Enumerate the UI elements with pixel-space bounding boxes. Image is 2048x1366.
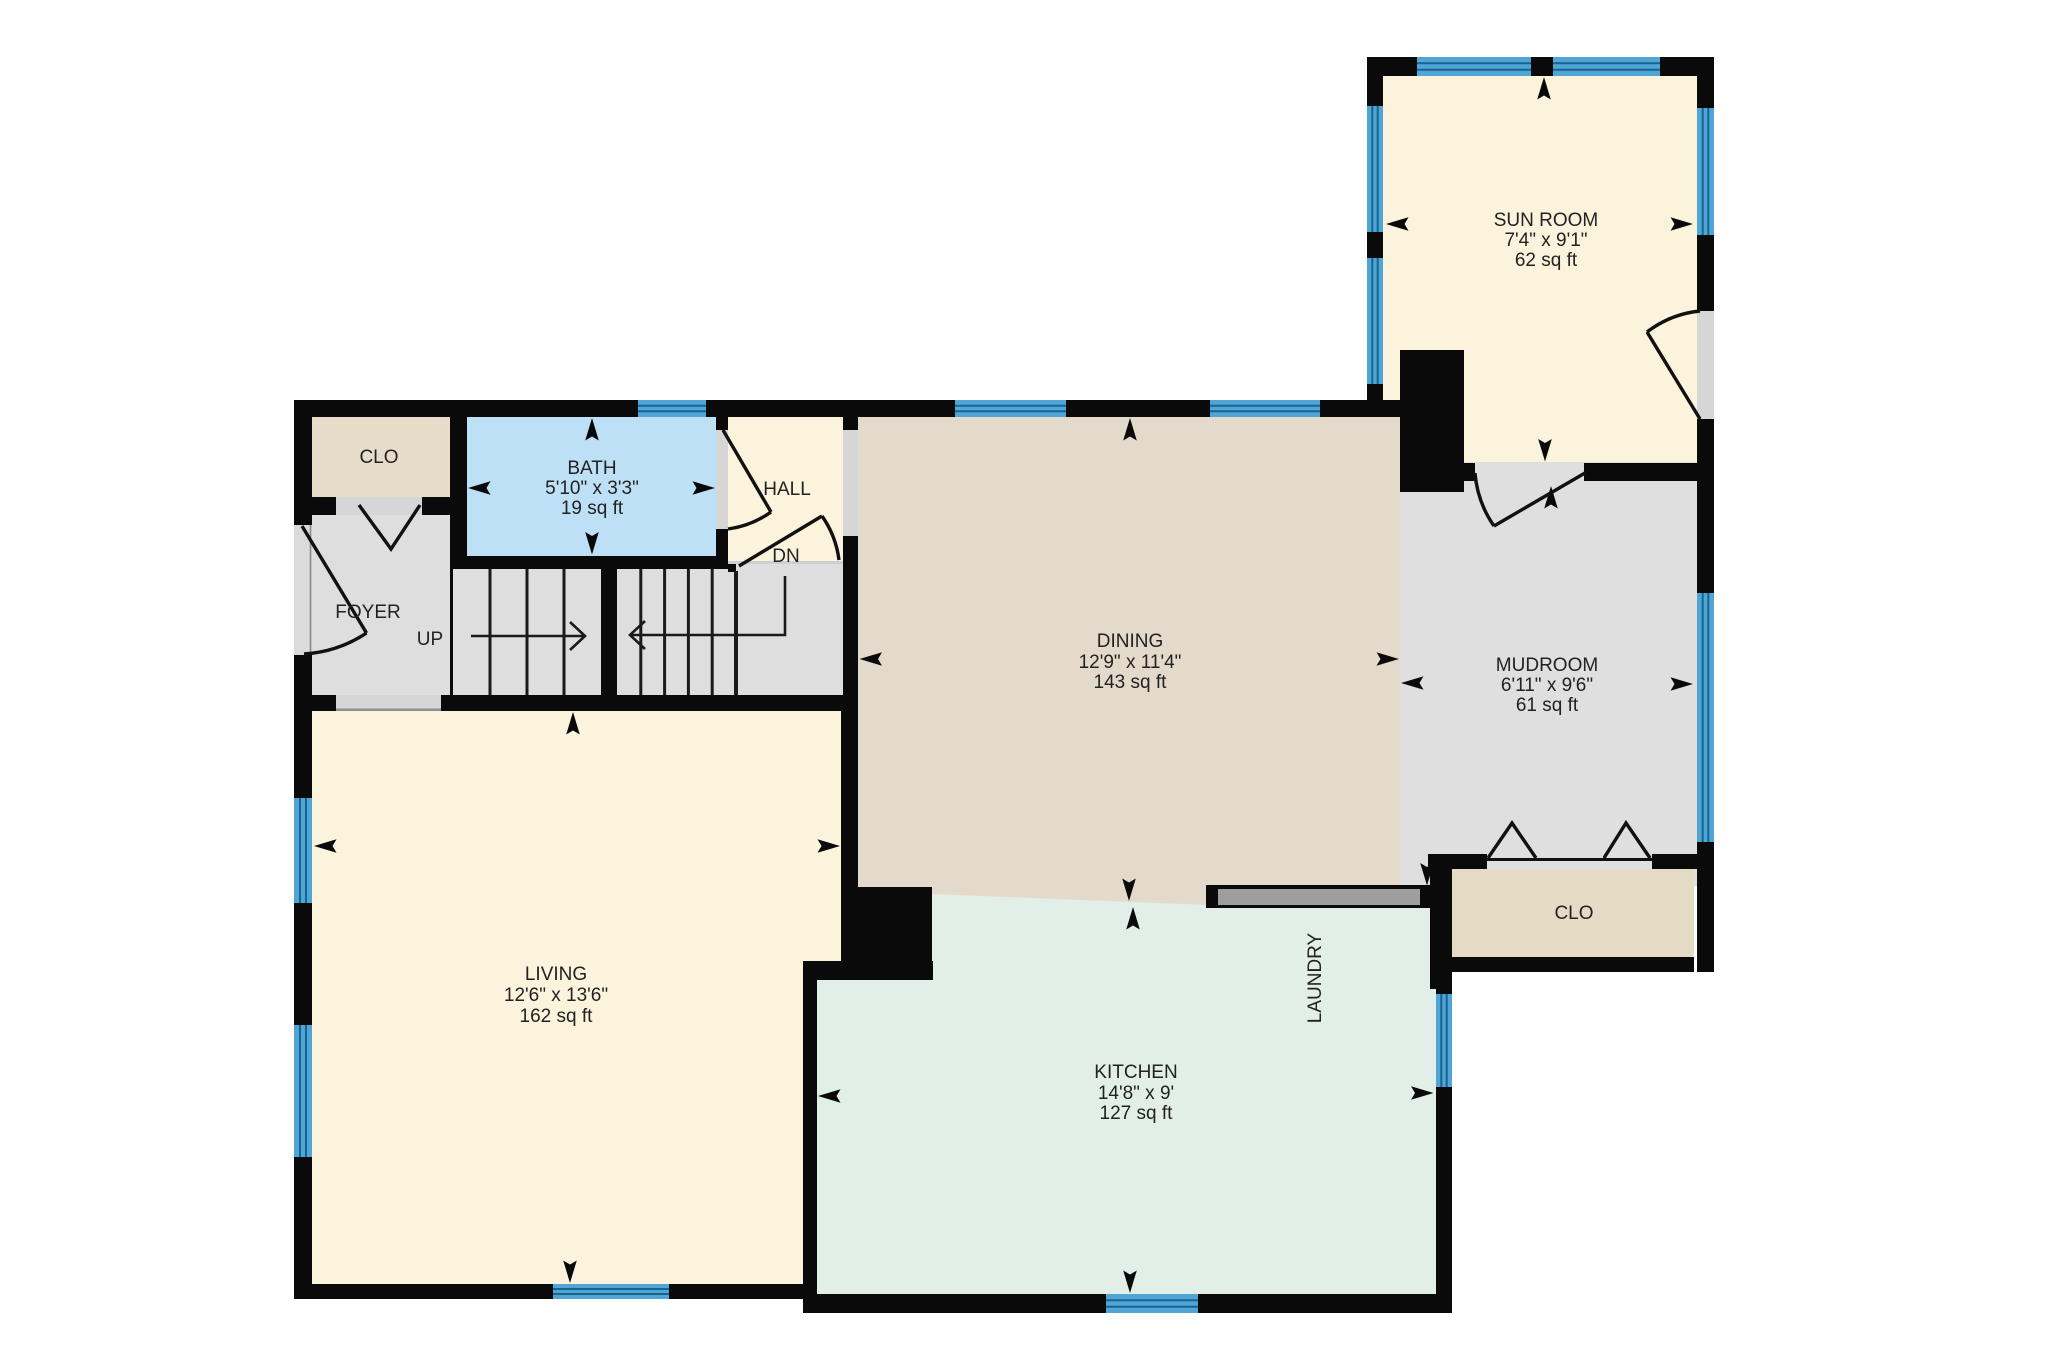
svg-text:HALL: HALL: [763, 479, 811, 500]
svg-text:14'8" x 9': 14'8" x 9': [1098, 1083, 1174, 1104]
svg-text:DINING: DINING: [1097, 631, 1164, 652]
svg-text:DN: DN: [772, 546, 799, 567]
svg-text:CLO: CLO: [359, 447, 398, 468]
svg-text:12'6" x 13'6": 12'6" x 13'6": [504, 985, 608, 1006]
svg-text:162 sq ft: 162 sq ft: [520, 1006, 594, 1027]
svg-text:MUDROOM: MUDROOM: [1496, 655, 1598, 676]
svg-text:LIVING: LIVING: [525, 964, 587, 985]
svg-text:12'9" x 11'4": 12'9" x 11'4": [1079, 652, 1182, 673]
svg-text:62 sq ft: 62 sq ft: [1515, 250, 1578, 271]
svg-text:5'10" x 3'3": 5'10" x 3'3": [545, 478, 639, 499]
svg-text:61 sq ft: 61 sq ft: [1516, 695, 1579, 716]
svg-text:19 sq ft: 19 sq ft: [561, 498, 624, 519]
svg-text:6'11" x 9'6": 6'11" x 9'6": [1501, 675, 1593, 696]
svg-text:UP: UP: [417, 629, 443, 650]
svg-text:FOYER: FOYER: [335, 602, 400, 623]
svg-text:143 sq ft: 143 sq ft: [1094, 672, 1168, 693]
svg-text:7'4" x 9'1": 7'4" x 9'1": [1504, 230, 1587, 251]
svg-text:SUN ROOM: SUN ROOM: [1494, 210, 1599, 231]
svg-text:KITCHEN: KITCHEN: [1094, 1062, 1177, 1083]
svg-text:BATH: BATH: [567, 458, 616, 479]
svg-text:CLO: CLO: [1554, 903, 1593, 924]
svg-text:LAUNDRY: LAUNDRY: [1305, 932, 1326, 1023]
svg-text:127 sq ft: 127 sq ft: [1100, 1103, 1174, 1124]
